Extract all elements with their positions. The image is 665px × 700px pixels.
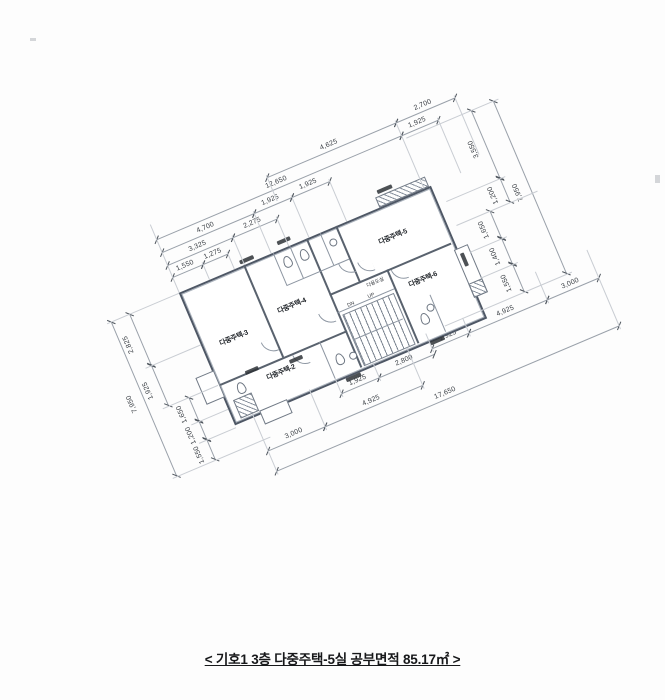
dim-segment: 2,825 — [129, 314, 152, 366]
scan-speck — [655, 175, 660, 183]
dim-segment: 1,925 — [401, 120, 438, 137]
dim-extension-line — [406, 348, 424, 389]
dim-segment: 7,950 — [111, 321, 178, 476]
dim-segment: 1,925 — [254, 197, 292, 214]
dim-extension-line — [107, 293, 179, 324]
dim-extension-line — [202, 262, 210, 280]
dim-extension-line — [145, 344, 201, 368]
floorplan-drawing: 4,625 2,700 12,650 1,925 4,700 1,925 1,9… — [0, 0, 665, 601]
dim-segment: 1,550 — [206, 439, 216, 460]
dim-segment: 1,650 — [188, 397, 199, 421]
dim-segment: 3,000 — [267, 427, 324, 452]
dim-extension-line — [437, 118, 461, 174]
dim-segment: 1,400 — [501, 238, 513, 264]
dim-extension-line — [454, 95, 480, 154]
drawing-caption: < 기호1 3층 다중주택-5실 공부면적 85.17㎡ > — [0, 648, 665, 669]
scanned-floorplan-page: 4,625 2,700 12,650 1,925 4,700 1,925 1,9… — [0, 0, 665, 700]
dim-extension-line — [173, 437, 271, 479]
dim-extension-line — [328, 179, 347, 222]
dim-segment: 3,000 — [547, 278, 599, 301]
dim-extension-line — [586, 250, 621, 330]
scan-speck — [30, 38, 36, 41]
dim-segment: 1,200 — [500, 178, 511, 202]
dim-segment: 1,550 — [512, 264, 525, 292]
dim-extension-line — [309, 389, 327, 430]
dim-extension-line — [535, 272, 549, 304]
dim-segment: 2,275 — [232, 219, 277, 239]
dim-extension-line — [253, 211, 272, 254]
dim-extension-line — [291, 195, 310, 238]
dim-segment: 1,925 — [151, 365, 169, 406]
dim-segment: 4,625 — [267, 123, 396, 179]
dim-segment: 1,275 — [202, 254, 227, 265]
dim-segment: 1,650 — [489, 211, 502, 239]
dim-extension-line — [227, 252, 235, 270]
building-outline — [179, 186, 487, 426]
dim-segment: 3,325 — [167, 238, 233, 267]
drawing-caption-text: < 기호1 3층 다중주택-5실 공부면적 85.17㎡ > — [205, 652, 461, 667]
dim-segment: 1,925 — [291, 181, 329, 198]
dim-segment: 1,550 — [172, 264, 203, 278]
